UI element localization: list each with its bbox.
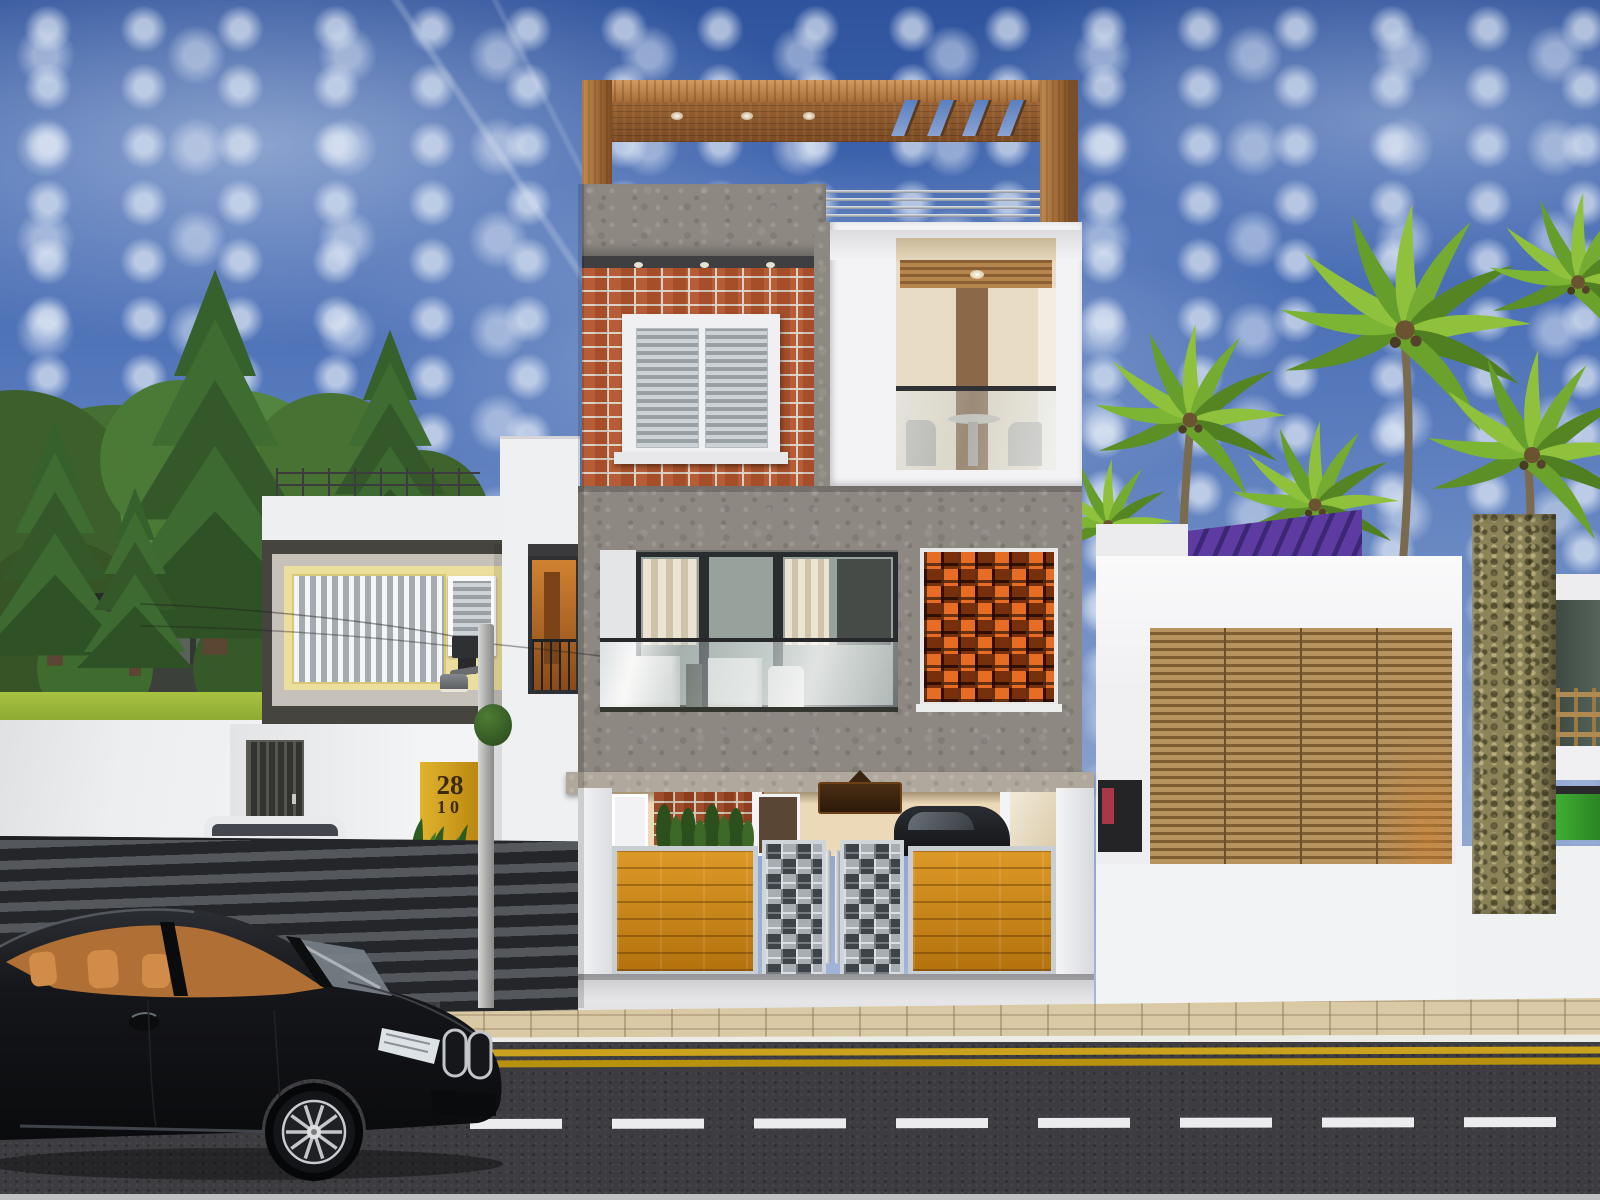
front-wheel	[265, 1083, 363, 1181]
black-sedan	[0, 874, 515, 1190]
car-seats	[28, 949, 170, 989]
pole-junction-box	[452, 636, 480, 658]
street-lamp-head	[440, 674, 468, 692]
bottom-strip	[0, 1194, 1600, 1200]
bush	[474, 704, 512, 746]
architectural-render: 28 10	[0, 0, 1600, 1200]
bmw-grille-left	[444, 1030, 466, 1076]
front-intake	[430, 1090, 496, 1116]
overhead-wires	[140, 560, 600, 680]
car-shadow	[0, 1148, 503, 1180]
bmw-grille-right	[469, 1032, 491, 1078]
lane-dashes	[470, 1117, 1600, 1129]
